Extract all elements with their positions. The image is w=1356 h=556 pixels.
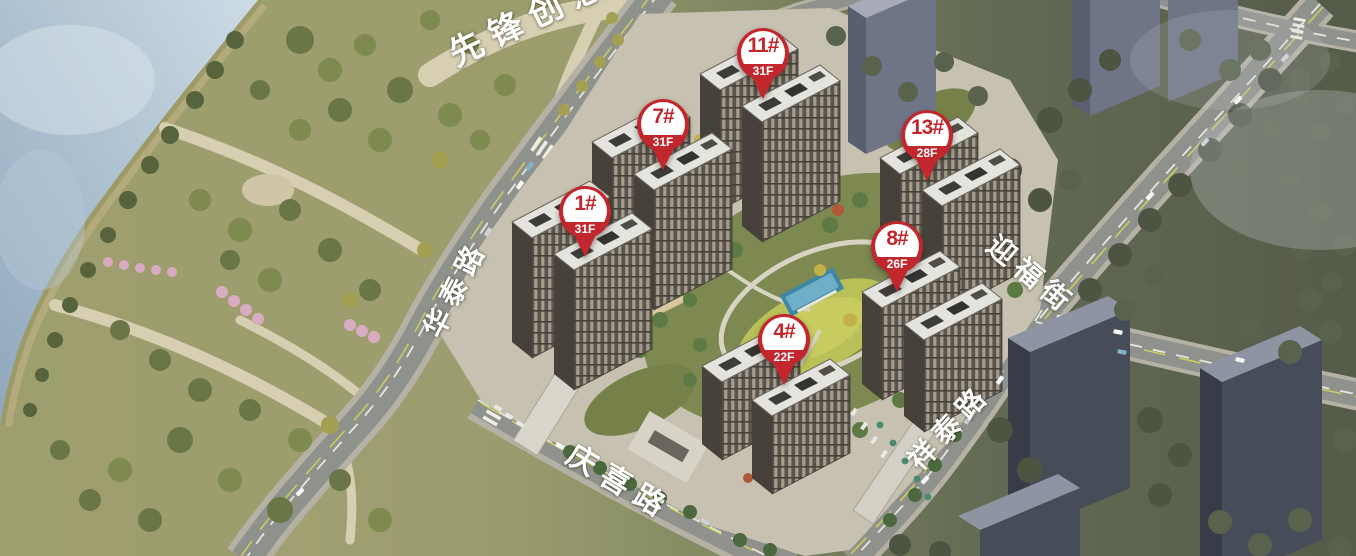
building-floor-count: 26F (871, 257, 923, 272)
building-marker[interactable]: 13# 28F (898, 110, 956, 186)
site-plan-artwork (0, 0, 1356, 556)
haze-2 (1130, 10, 1330, 110)
building-marker-head: 11# 31F (737, 28, 789, 80)
building-marker-tail (773, 363, 795, 385)
building-marker[interactable]: 1# 31F (556, 186, 614, 262)
building-marker-head: 1# 31F (559, 186, 611, 238)
building-marker-tail (886, 270, 908, 292)
building-number-label: 7# (637, 105, 689, 129)
building-number-label: 8# (871, 227, 923, 251)
building-marker[interactable]: 7# 31F (634, 99, 692, 175)
building-marker-head: 7# 31F (637, 99, 689, 151)
building-number-label: 11# (737, 34, 789, 58)
building-floor-count: 31F (559, 222, 611, 237)
building-number-label: 13# (901, 116, 953, 140)
building-marker-tail (574, 235, 596, 257)
building-number-label: 4# (758, 320, 810, 344)
building-floor-count: 22F (758, 350, 810, 365)
building-floor-count: 28F (901, 146, 953, 161)
building-floor-count: 31F (737, 64, 789, 79)
building-marker-head: 8# 26F (871, 221, 923, 273)
building-marker-tail (752, 77, 774, 99)
building-marker-tail (652, 148, 674, 170)
building-marker[interactable]: 8# 26F (868, 221, 926, 297)
building-marker-head: 13# 28F (901, 110, 953, 162)
building-floor-count: 31F (637, 135, 689, 150)
building-number-label: 1# (559, 192, 611, 216)
building-marker[interactable]: 4# 22F (755, 314, 813, 390)
aerial-masterplan-rendering: 先锋创意 华泰路 迎福街 祥泰路 庆喜路 1# 31F 4# 22F 7# 31… (0, 0, 1356, 556)
building-marker-tail (916, 159, 938, 181)
building-marker[interactable]: 11# 31F (734, 28, 792, 104)
building-marker-head: 4# 22F (758, 314, 810, 366)
